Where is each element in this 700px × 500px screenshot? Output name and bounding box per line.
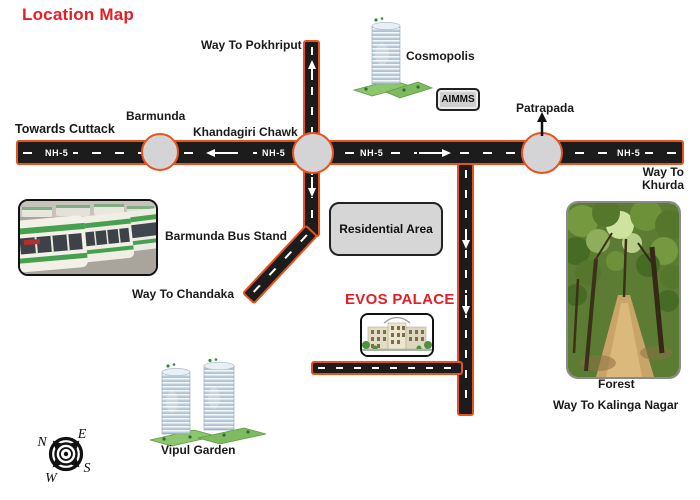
north-arrow-icon	[307, 60, 317, 82]
patrapada-pointer-arrow-icon	[536, 112, 548, 136]
way-to-khurda-label: Way To Khurda	[630, 166, 684, 192]
evos-palace-label: EVOS PALACE	[345, 291, 455, 308]
forest-label: Forest	[598, 377, 635, 391]
lane-divider	[23, 152, 677, 154]
south-arrow-icon	[461, 227, 471, 249]
nh5-route-label: NH-5	[257, 148, 290, 158]
patrapada-junction	[521, 132, 563, 174]
south-arrow-icon	[307, 175, 317, 197]
khandagiri-chawk-label: Khandagiri Chawk	[193, 125, 298, 139]
aimms-label: AIMMS	[441, 94, 474, 105]
lane-divider	[252, 235, 308, 295]
nh5-route-label: NH-5	[40, 148, 73, 158]
aimms-box: AIMMS	[436, 88, 480, 111]
bus-stand-photo	[18, 199, 158, 276]
way-to-kalinga-nagar-label: Way To Kalinga Nagar	[553, 398, 678, 412]
way-to-chandaka-label: Way To Chandaka	[132, 287, 234, 301]
forest-photo	[566, 201, 681, 379]
nh5-route-label: NH-5	[612, 148, 645, 158]
lane-divider	[465, 170, 467, 409]
compass-rose-icon: N E S W	[30, 410, 106, 492]
buses-illustration	[20, 201, 156, 274]
evos-access-road-horizontal	[311, 361, 463, 375]
compass-east-label: E	[77, 427, 87, 442]
page-title: Location Map	[22, 5, 134, 25]
nh5-route-label: NH-5	[355, 148, 388, 158]
compass-west-label: W	[45, 471, 58, 486]
way-to-khurda-line2: Khurda	[630, 179, 684, 192]
barmunda-junction	[141, 133, 179, 171]
compass-north-label: N	[36, 435, 47, 450]
evos-access-road-vertical	[457, 163, 474, 416]
vipul-garden-towers-icon	[148, 358, 268, 450]
east-arrow-icon	[417, 148, 451, 158]
west-arrow-icon	[206, 148, 240, 158]
barmunda-label: Barmunda	[126, 109, 185, 123]
bus-stand-label: Barmunda Bus Stand	[165, 229, 287, 243]
cosmopolis-label: Cosmopolis	[406, 49, 475, 63]
vipul-garden-label: Vipul Garden	[161, 443, 235, 457]
location-map: Location Map	[0, 0, 700, 500]
patrapada-label: Patrapada	[516, 101, 574, 115]
residential-area-box: Residential Area	[329, 202, 443, 256]
towards-cuttack-label: Towards Cuttack	[15, 122, 115, 136]
khandagiri-chawk-junction	[292, 132, 334, 174]
way-to-pokhriput-label: Way To Pokhriput	[201, 38, 302, 52]
nh5-highway-road: NH-5 NH-5 NH-5 NH-5	[16, 140, 684, 165]
compass-south-label: S	[84, 461, 91, 476]
lane-divider	[318, 367, 456, 369]
residential-area-label: Residential Area	[339, 222, 433, 236]
evos-palace-photo	[360, 313, 434, 357]
pokhriput-road	[303, 40, 320, 142]
south-arrow-icon	[461, 293, 471, 315]
